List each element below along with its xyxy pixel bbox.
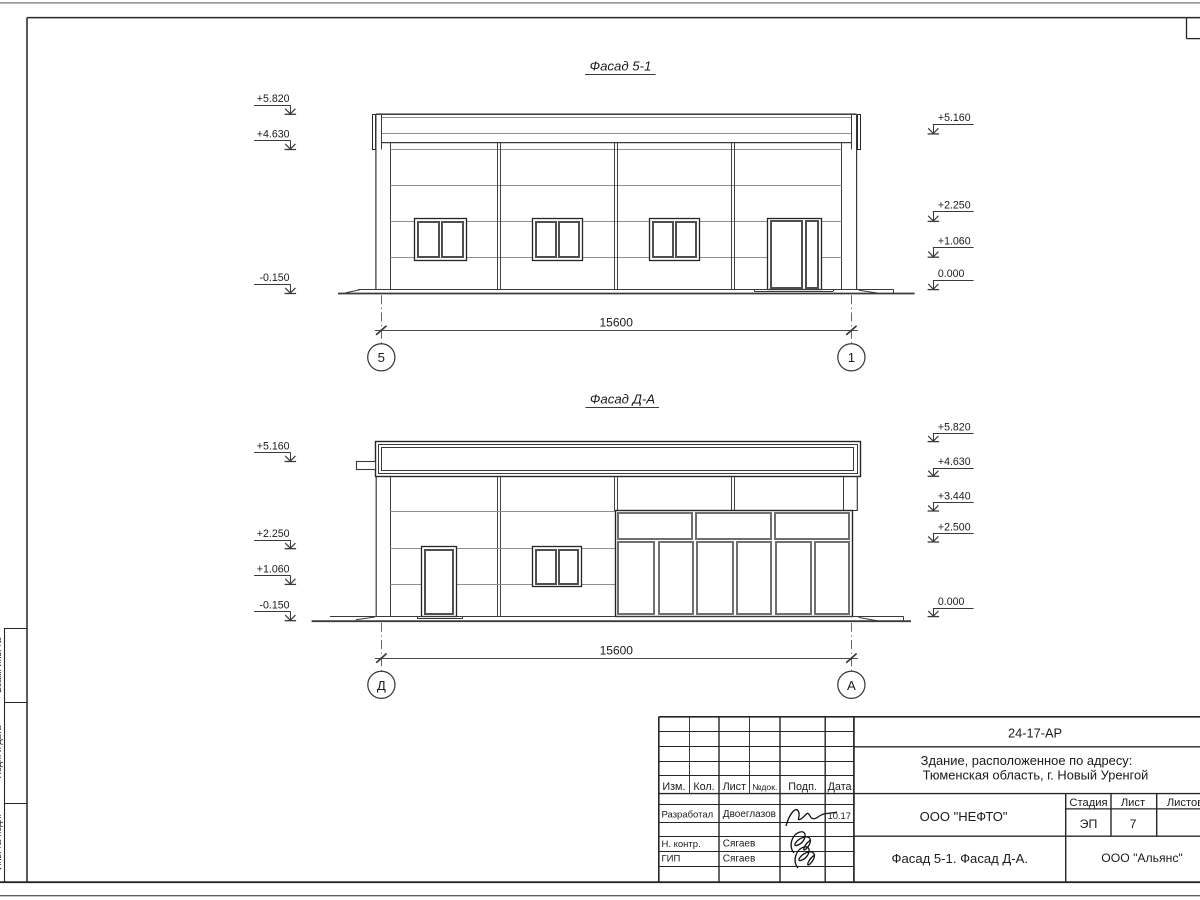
svg-text:Листов: Листов <box>1167 797 1200 809</box>
svg-text:Н. контр.: Н. контр. <box>662 839 701 850</box>
svg-text:0.000: 0.000 <box>938 268 965 280</box>
svg-text:+5.820: +5.820 <box>938 422 971 434</box>
svg-text:ЭП: ЭП <box>1080 817 1098 831</box>
svg-text:Лист: Лист <box>1121 797 1145 809</box>
svg-text:+1.060: +1.060 <box>938 235 971 247</box>
svg-text:+5.160: +5.160 <box>257 441 290 453</box>
svg-text:1: 1 <box>848 350 855 365</box>
svg-text:7: 7 <box>1130 817 1137 831</box>
svg-text:Сягаев: Сягаев <box>723 839 756 850</box>
svg-text:+2.250: +2.250 <box>938 200 971 212</box>
svg-text:+2.500: +2.500 <box>938 521 971 533</box>
svg-text:ООО "НЕФТО": ООО "НЕФТО" <box>920 809 1008 824</box>
svg-text:Стадия: Стадия <box>1069 797 1107 809</box>
svg-text:ГИП: ГИП <box>662 854 681 865</box>
svg-text:Взам. инв. №: Взам. инв. № <box>0 637 3 693</box>
svg-text:-0.150: -0.150 <box>259 600 289 612</box>
svg-text:+4.630: +4.630 <box>257 129 290 141</box>
svg-text:+3.440: +3.440 <box>938 490 971 502</box>
svg-text:+5.820: +5.820 <box>257 93 290 105</box>
svg-text:15600: 15600 <box>600 643 634 657</box>
svg-text:Разработал: Разработал <box>662 810 714 821</box>
svg-text:Двоеглазов: Двоеглазов <box>723 809 776 820</box>
svg-text:Фасад Д-А: Фасад Д-А <box>590 392 655 407</box>
svg-text:24-17-АР: 24-17-АР <box>1008 725 1062 740</box>
svg-text:+5.160: +5.160 <box>938 112 971 124</box>
svg-text:А: А <box>847 678 856 693</box>
svg-text:Лист: Лист <box>723 781 747 793</box>
svg-text:10.17: 10.17 <box>828 810 851 821</box>
svg-text:Тюменская область, г. Новый Ур: Тюменская область, г. Новый Уренгой <box>923 767 1149 782</box>
svg-text:№док.: №док. <box>752 782 777 792</box>
svg-text:+1.060: +1.060 <box>257 564 290 576</box>
svg-text:Д: Д <box>377 678 386 693</box>
svg-text:Фасад 5-1: Фасад 5-1 <box>590 59 652 74</box>
svg-text:Инв. № подл.: Инв. № подл. <box>0 814 3 870</box>
svg-text:Здание, расположенное по адрес: Здание, расположенное по адресу: <box>921 753 1133 768</box>
svg-text:+4.630: +4.630 <box>938 456 971 468</box>
svg-text:Сягаев: Сягаев <box>723 853 756 864</box>
svg-text:0.000: 0.000 <box>938 596 965 608</box>
svg-text:-0.150: -0.150 <box>259 272 289 284</box>
svg-text:Подп.: Подп. <box>788 781 817 793</box>
svg-text:Подп. и дата: Подп. и дата <box>0 725 3 778</box>
svg-text:5: 5 <box>378 350 385 365</box>
svg-text:Фасад 5-1. Фасад Д-А.: Фасад 5-1. Фасад Д-А. <box>892 851 1029 866</box>
svg-text:Кол.: Кол. <box>693 781 714 793</box>
svg-text:+2.250: +2.250 <box>257 528 290 540</box>
svg-text:15600: 15600 <box>600 316 634 330</box>
svg-text:Изм.: Изм. <box>662 781 685 793</box>
svg-text:Дата: Дата <box>828 781 852 793</box>
svg-text:ООО "Альянс": ООО "Альянс" <box>1101 851 1183 865</box>
